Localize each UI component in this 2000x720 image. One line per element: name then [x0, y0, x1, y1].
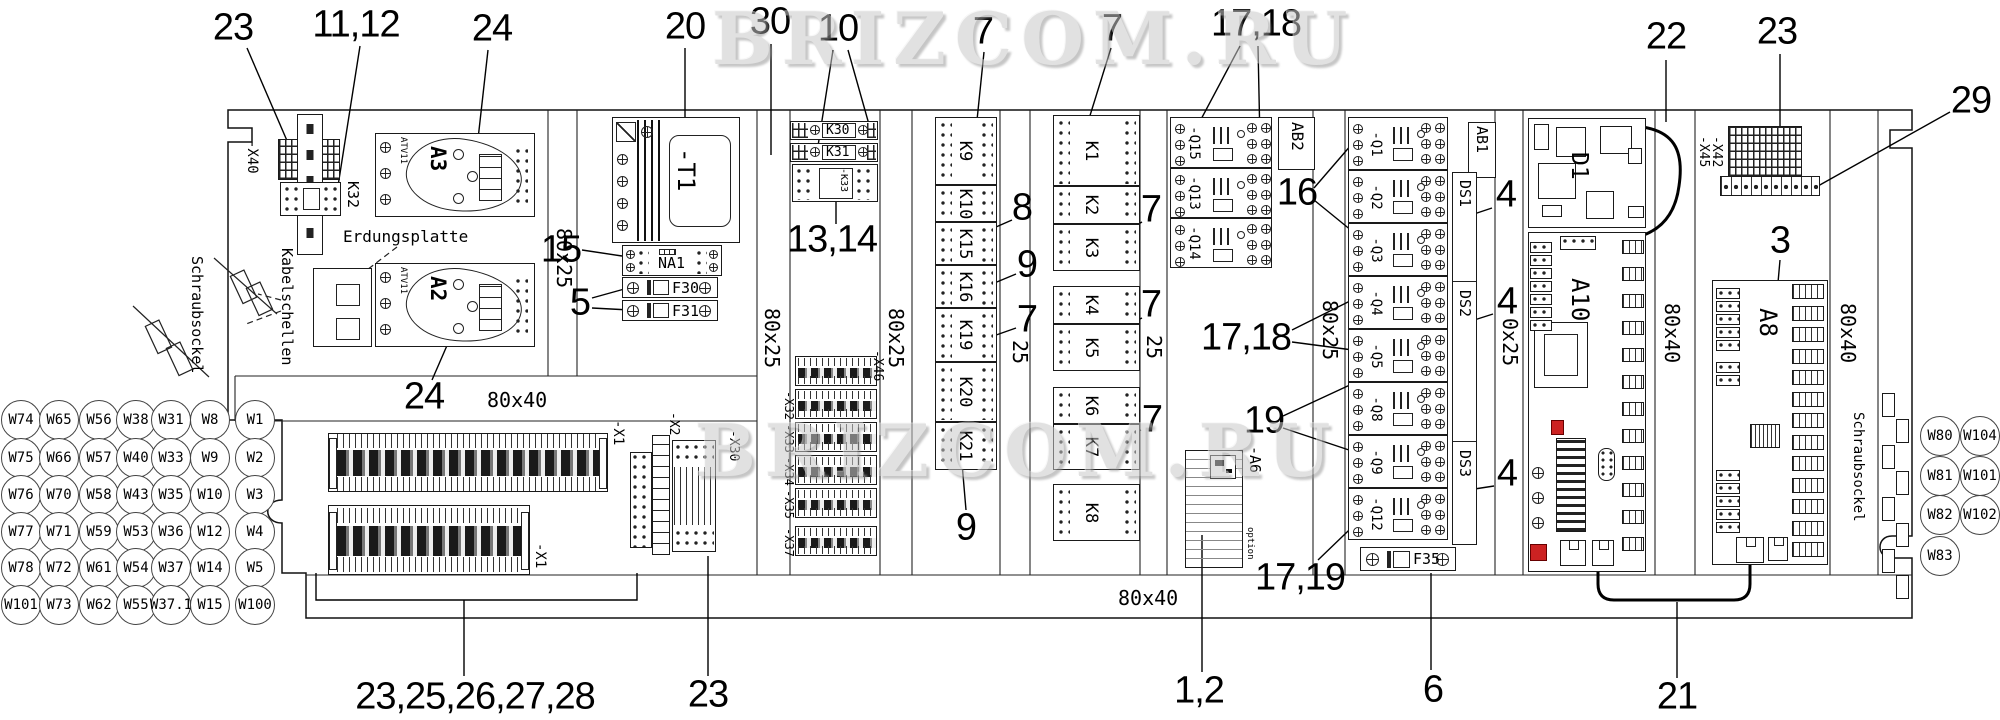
a10-connector: [1530, 307, 1552, 318]
callout: 8: [1012, 187, 1032, 230]
wire-circle: W1: [235, 400, 275, 440]
wire-circle: W5: [235, 548, 275, 588]
schraubsockel-right-label: Schraubsockel: [1850, 412, 1866, 522]
screw: [1421, 388, 1431, 398]
callout: 22: [1646, 16, 1686, 59]
na1-label: NA1: [658, 254, 685, 272]
wire-circle: W83: [1920, 536, 1960, 576]
a2-label: A2: [426, 276, 450, 301]
a10-chip: [1534, 322, 1588, 388]
duct-size-label: 80x40: [487, 388, 547, 412]
drawing-lines: [0, 0, 2000, 720]
a8-connector: [1792, 392, 1824, 407]
callout: 23: [1757, 11, 1797, 54]
terminal-x2-left: [630, 452, 652, 548]
screw: [1353, 527, 1363, 537]
breaker-toggle: [1393, 519, 1413, 532]
callout: 7: [1141, 284, 1161, 327]
wire-circle: W36: [151, 512, 191, 552]
breaker-label: -Q12: [1368, 497, 1384, 531]
relay-terminals: [980, 189, 993, 220]
callout: 6: [1423, 669, 1443, 712]
screw: [1421, 366, 1431, 376]
screw: [1353, 193, 1363, 203]
duct-size-label: 80x25: [1318, 300, 1342, 360]
relay-terminals: [1123, 228, 1136, 269]
screw: [1353, 299, 1363, 309]
callout: 13,14: [787, 219, 877, 262]
rail-clip: [1896, 523, 1909, 547]
terminal-strip-x45-x42-lower: [1720, 176, 1820, 196]
breaker-toggle: [1213, 199, 1233, 212]
watermark-top: BRIZCOM.RU: [712, 0, 1356, 81]
screw: [1353, 124, 1363, 134]
callout: 17,18: [1201, 317, 1291, 360]
callout: 15: [541, 229, 581, 272]
a10-jumper-red: [1551, 420, 1564, 435]
breaker-unit: [1348, 435, 1448, 488]
f35-label: F35: [1413, 550, 1440, 568]
duct-size-label: 80x40: [1836, 303, 1860, 363]
screw: [1353, 474, 1363, 484]
screw: [1435, 525, 1445, 535]
a10-port: [1560, 540, 1586, 566]
screw: [1353, 511, 1363, 521]
k30-label: K30: [826, 123, 849, 138]
a10-connector: [1530, 281, 1552, 292]
callout: 20: [665, 6, 705, 49]
breaker-body: [1393, 445, 1413, 462]
ds2-label: DS2: [1456, 290, 1474, 317]
terminal-strip-row: [795, 526, 877, 556]
screw: [1175, 175, 1185, 185]
a8-connector: [1716, 509, 1740, 520]
wire-circle: W82: [1920, 495, 1960, 535]
callout: 4: [1497, 453, 1517, 496]
a8-connector: [1792, 413, 1824, 428]
wire-circle: W100: [235, 585, 275, 625]
wire-circle: W2: [235, 438, 275, 478]
screw: [1261, 190, 1271, 200]
a8-port: [1768, 537, 1788, 561]
strip-ticks: [798, 376, 876, 384]
rail-clip: [1882, 549, 1895, 573]
relay-terminals: [939, 226, 952, 263]
screw: [1261, 255, 1271, 265]
wire-circle: W70: [39, 475, 79, 515]
d1-label: D1: [1566, 152, 1592, 180]
relay-label: K1: [1081, 140, 1101, 160]
screw: [1353, 495, 1363, 505]
k33-label: -K33: [838, 168, 849, 192]
a10-connector: [1622, 537, 1644, 551]
a10-connector: [1530, 255, 1552, 266]
wire-circle: W35: [151, 475, 191, 515]
wire-circle: W78: [1, 548, 41, 588]
relay-terminals: [1057, 328, 1070, 369]
breaker-toggle: [1393, 413, 1413, 426]
screw: [1175, 241, 1185, 251]
ds1-label: DS1: [1456, 180, 1474, 207]
terminal-x2-rail: [652, 435, 670, 555]
screw: [1247, 240, 1257, 250]
wire-circle: W81: [1920, 456, 1960, 496]
callout: 17,19: [1255, 557, 1345, 600]
screw: [1421, 245, 1431, 255]
a10-connector: [1622, 402, 1644, 416]
callout: 9: [956, 507, 976, 550]
relay-terminals: [1057, 488, 1070, 539]
screw: [1421, 139, 1431, 149]
a8-connector: [1792, 306, 1824, 321]
callout: 7: [1141, 189, 1161, 232]
breaker-body: [1393, 392, 1413, 409]
wire-circle: W102: [1960, 495, 2000, 535]
callout: 7: [1017, 299, 1037, 342]
relay-label: K20: [955, 377, 975, 408]
a2-type-label: ATV11: [398, 267, 408, 294]
a8-connector: [1792, 521, 1824, 536]
callout: 23: [213, 7, 253, 50]
breaker-body: [1213, 127, 1233, 144]
screw: [1421, 457, 1431, 467]
terminal-strip-x1-top: [328, 433, 608, 492]
rail-clip: [1882, 445, 1895, 469]
relay-terminals: [939, 121, 952, 183]
relay-terminals: [980, 226, 993, 263]
a8-connector: [1716, 362, 1740, 373]
a2-display: [479, 284, 502, 331]
ab1-label: AB1: [1473, 126, 1491, 153]
screw: [1435, 313, 1445, 323]
x2-label: -X2: [666, 412, 681, 435]
wire-circle: W12: [190, 512, 230, 552]
screw: [1175, 124, 1185, 134]
wire-circle: W66: [39, 438, 79, 478]
wire-circle: W56: [79, 400, 119, 440]
callout: 5: [570, 282, 590, 325]
breaker-toggle: [1393, 201, 1413, 214]
breaker-unit: [1348, 382, 1448, 435]
wire-circle: W31: [151, 400, 191, 440]
terminal-stack-label: -X35: [782, 490, 796, 519]
screw: [1421, 298, 1431, 308]
a8-connector: [1792, 456, 1824, 471]
screw: [1421, 419, 1431, 429]
screw: [1353, 336, 1363, 346]
a10-port: [1592, 540, 1614, 566]
duct-size-label: 80x25: [884, 308, 908, 368]
callout: 4: [1497, 281, 1517, 324]
terminal-stack-label: -X37: [782, 528, 796, 557]
screw: [1247, 205, 1257, 215]
screw: [1353, 368, 1363, 378]
a8-connector: [1716, 314, 1740, 325]
a8-connector: [1792, 327, 1824, 342]
breaker-unit: [1348, 329, 1448, 382]
screw: [1435, 366, 1445, 376]
x42-label: -X42: [1709, 136, 1724, 167]
a8-connector: [1716, 327, 1740, 338]
screw: [1435, 139, 1445, 149]
terminal-strip-x1-bottom: [328, 505, 530, 575]
relay-terminals: [980, 312, 993, 360]
a10-connector: [1622, 456, 1644, 470]
relay-terminals: [1123, 328, 1136, 369]
rail-clip: [1882, 393, 1895, 417]
breaker-label: -Q14: [1186, 226, 1202, 260]
a10-led-bar: [1556, 438, 1586, 532]
breaker-indicator: [1237, 130, 1245, 138]
duct-size-label: 80x40: [1118, 586, 1178, 610]
screw: [1175, 191, 1185, 201]
a10-connector: [1530, 242, 1552, 253]
wire-circle: W9: [190, 438, 230, 478]
breaker-toggle: [1393, 148, 1413, 161]
screw: [1353, 389, 1363, 399]
a8-connector: [1792, 478, 1824, 493]
screw: [1435, 388, 1445, 398]
terminal-strip-row: [795, 356, 877, 386]
breaker-toggle: [1393, 360, 1413, 373]
wire-circle: W101: [1960, 456, 2000, 496]
a10-jumper-red: [1530, 544, 1547, 561]
screw: [1353, 262, 1363, 272]
a10-connector: [1530, 294, 1552, 305]
breaker-body: [1393, 180, 1413, 197]
wire-circle: W37: [151, 548, 191, 588]
relay-label: K19: [955, 320, 975, 351]
breaker-label: -Q8: [1368, 396, 1384, 421]
a8-connector: [1716, 375, 1740, 386]
a8-connector: [1792, 284, 1824, 299]
screw: [1421, 404, 1431, 414]
a10-label: A10: [1566, 278, 1594, 321]
screw: [1435, 494, 1445, 504]
callout: 3: [1770, 220, 1790, 263]
a3-type-label: ATV11: [398, 137, 408, 164]
f31-label: F31: [672, 302, 699, 320]
screw: [1261, 205, 1271, 215]
breaker-indicator: [1237, 181, 1245, 189]
a6-option-label: option: [1245, 527, 1255, 560]
rail-clip: [1896, 471, 1909, 495]
relay-label: K10: [955, 188, 975, 219]
screw: [1421, 441, 1431, 451]
a8-ic: [1750, 424, 1780, 448]
breaker-body: [1393, 286, 1413, 303]
x46-label: -X46: [870, 350, 885, 381]
breaker-unit: [1348, 488, 1448, 540]
a10-connector: [1622, 267, 1644, 281]
ab2-label: AB2: [1288, 122, 1307, 151]
screw: [1421, 335, 1431, 345]
wire-circle: W43: [116, 475, 156, 515]
wire-circle: W38: [116, 400, 156, 440]
screw: [1421, 176, 1431, 186]
breaker-body: [1393, 339, 1413, 356]
a8-connector: [1792, 542, 1824, 557]
callout: 23: [688, 674, 728, 717]
wire-circle: W80: [1920, 416, 1960, 456]
x1-top-label: -X1: [610, 420, 626, 445]
a10-connector: [1530, 268, 1552, 279]
screw: [1421, 260, 1431, 270]
breaker-label: -Q2: [1368, 184, 1384, 209]
breaker-label: -Q3: [1368, 237, 1384, 262]
wire-circle: W73: [39, 585, 79, 625]
callout: 4: [1496, 174, 1516, 217]
screw: [1353, 315, 1363, 325]
relay-terminals: [1123, 488, 1136, 539]
x1-bottom-label: -X1: [532, 543, 548, 568]
wire-circle: W62: [79, 585, 119, 625]
callout: 29: [1951, 80, 1991, 123]
breaker-toggle: [1393, 254, 1413, 267]
duct-size-label: 80x25: [760, 308, 784, 368]
screw: [1261, 123, 1271, 133]
screw: [1353, 421, 1363, 431]
a8-connector: [1716, 340, 1740, 351]
breaker-indicator: [1237, 231, 1245, 239]
fuse-f35: [1360, 547, 1456, 571]
screw: [1353, 246, 1363, 256]
screw: [1175, 156, 1185, 166]
rail-clip: [1896, 419, 1909, 443]
callout: 24: [404, 376, 444, 419]
relay-terminals: [939, 189, 952, 220]
screw: [1435, 260, 1445, 270]
relay-terminals: [1057, 190, 1070, 222]
screw: [1435, 510, 1445, 520]
a10-connector: [1622, 348, 1644, 362]
relay-terminals: [939, 269, 952, 306]
screw: [1247, 255, 1257, 265]
screw: [1353, 405, 1363, 415]
a10-connector: [1622, 429, 1644, 443]
callout: 11,12: [312, 4, 399, 47]
screw: [1421, 351, 1431, 361]
relay-label: K16: [955, 271, 975, 302]
wire-circle: W61: [79, 548, 119, 588]
screw: [1421, 192, 1431, 202]
wire-circle: W58: [79, 475, 119, 515]
a3-body: [401, 131, 526, 219]
callout: 23,25,26,27,28: [355, 676, 595, 719]
screw: [1175, 257, 1185, 267]
erdungsplatte-plate: [313, 268, 372, 347]
cabinet-layout-drawing: BRIZCOM.RU BRIZCOM.RU Schraubsockel Kabe…: [0, 0, 2000, 720]
screw: [1247, 224, 1257, 234]
a8-connector: [1792, 435, 1824, 450]
a10-connector: [1622, 294, 1644, 308]
breaker-label: -Q1: [1368, 131, 1384, 156]
screw: [1435, 298, 1445, 308]
kabelschellen-label: Kabelschellen: [278, 248, 296, 365]
screw: [1421, 154, 1431, 164]
relay-label: K2: [1081, 195, 1101, 215]
relay-label: K3: [1081, 237, 1101, 257]
x40-label: -X40: [244, 140, 260, 174]
t1-label: -T1: [672, 148, 700, 191]
wire-circle: W101: [1, 585, 41, 625]
breaker-unit: [1348, 170, 1448, 223]
a10-connector: [1622, 510, 1644, 524]
relay-label: K9: [955, 141, 975, 161]
strip-ticks: [798, 358, 876, 366]
a8-connector: [1716, 483, 1740, 494]
screw: [1353, 209, 1363, 219]
screw: [1435, 404, 1445, 414]
relay-terminals: [939, 312, 952, 360]
rail-clip: [1896, 575, 1909, 599]
a8-connector: [1716, 470, 1740, 481]
wire-circle: W75: [1, 438, 41, 478]
callout: 24: [472, 8, 512, 51]
rail-clip: [1882, 497, 1895, 521]
breaker-body: [1393, 127, 1413, 144]
t1-laminations: [637, 120, 665, 241]
f30-label: F30: [672, 279, 699, 297]
screw: [1175, 207, 1185, 217]
erdungsplatte-label: Erdungsplatte: [343, 227, 468, 246]
screw: [1261, 224, 1271, 234]
wire-circle: W74: [1, 400, 41, 440]
screw: [1421, 207, 1431, 217]
a10-connector: [1622, 240, 1644, 254]
screw: [1353, 352, 1363, 362]
breaker-label: -Q9: [1368, 449, 1384, 474]
breaker-label: -Q5: [1368, 343, 1384, 368]
relay-label: K4: [1081, 295, 1101, 315]
strip-ticks: [798, 528, 876, 536]
screw: [1247, 154, 1257, 164]
relay-terminals: [980, 121, 993, 183]
screw: [1175, 140, 1185, 150]
breaker-label: -Q4: [1368, 290, 1384, 315]
screw: [1435, 207, 1445, 217]
wire-circle: W65: [39, 400, 79, 440]
a8-connector: [1716, 288, 1740, 299]
wire-circle: W15: [190, 585, 230, 625]
screw: [1435, 441, 1445, 451]
breaker-unit: [1348, 223, 1448, 276]
relay-k32: [280, 182, 341, 216]
strip-ticks: [798, 391, 876, 399]
wire-circle: W40: [116, 438, 156, 478]
wire-circle: W72: [39, 548, 79, 588]
screw: [1353, 458, 1363, 468]
a10-connector: [1530, 320, 1552, 331]
wire-circle: W14: [190, 548, 230, 588]
a8-connector: [1792, 499, 1824, 514]
screw: [1435, 351, 1445, 361]
screw: [1421, 472, 1431, 482]
breaker-unit: [1348, 117, 1448, 170]
screw: [1435, 457, 1445, 467]
screw: [1261, 240, 1271, 250]
breaker-toggle: [1393, 466, 1413, 479]
breaker-body: [1393, 498, 1413, 515]
screw: [1247, 190, 1257, 200]
screw: [1353, 230, 1363, 240]
relay-k33: [792, 164, 878, 202]
a10-connector: [1622, 483, 1644, 497]
a8-label: A8: [1754, 308, 1782, 337]
strip-ticks: [798, 546, 876, 554]
ds3-label: DS3: [1456, 450, 1474, 477]
callout: 21: [1657, 676, 1697, 719]
